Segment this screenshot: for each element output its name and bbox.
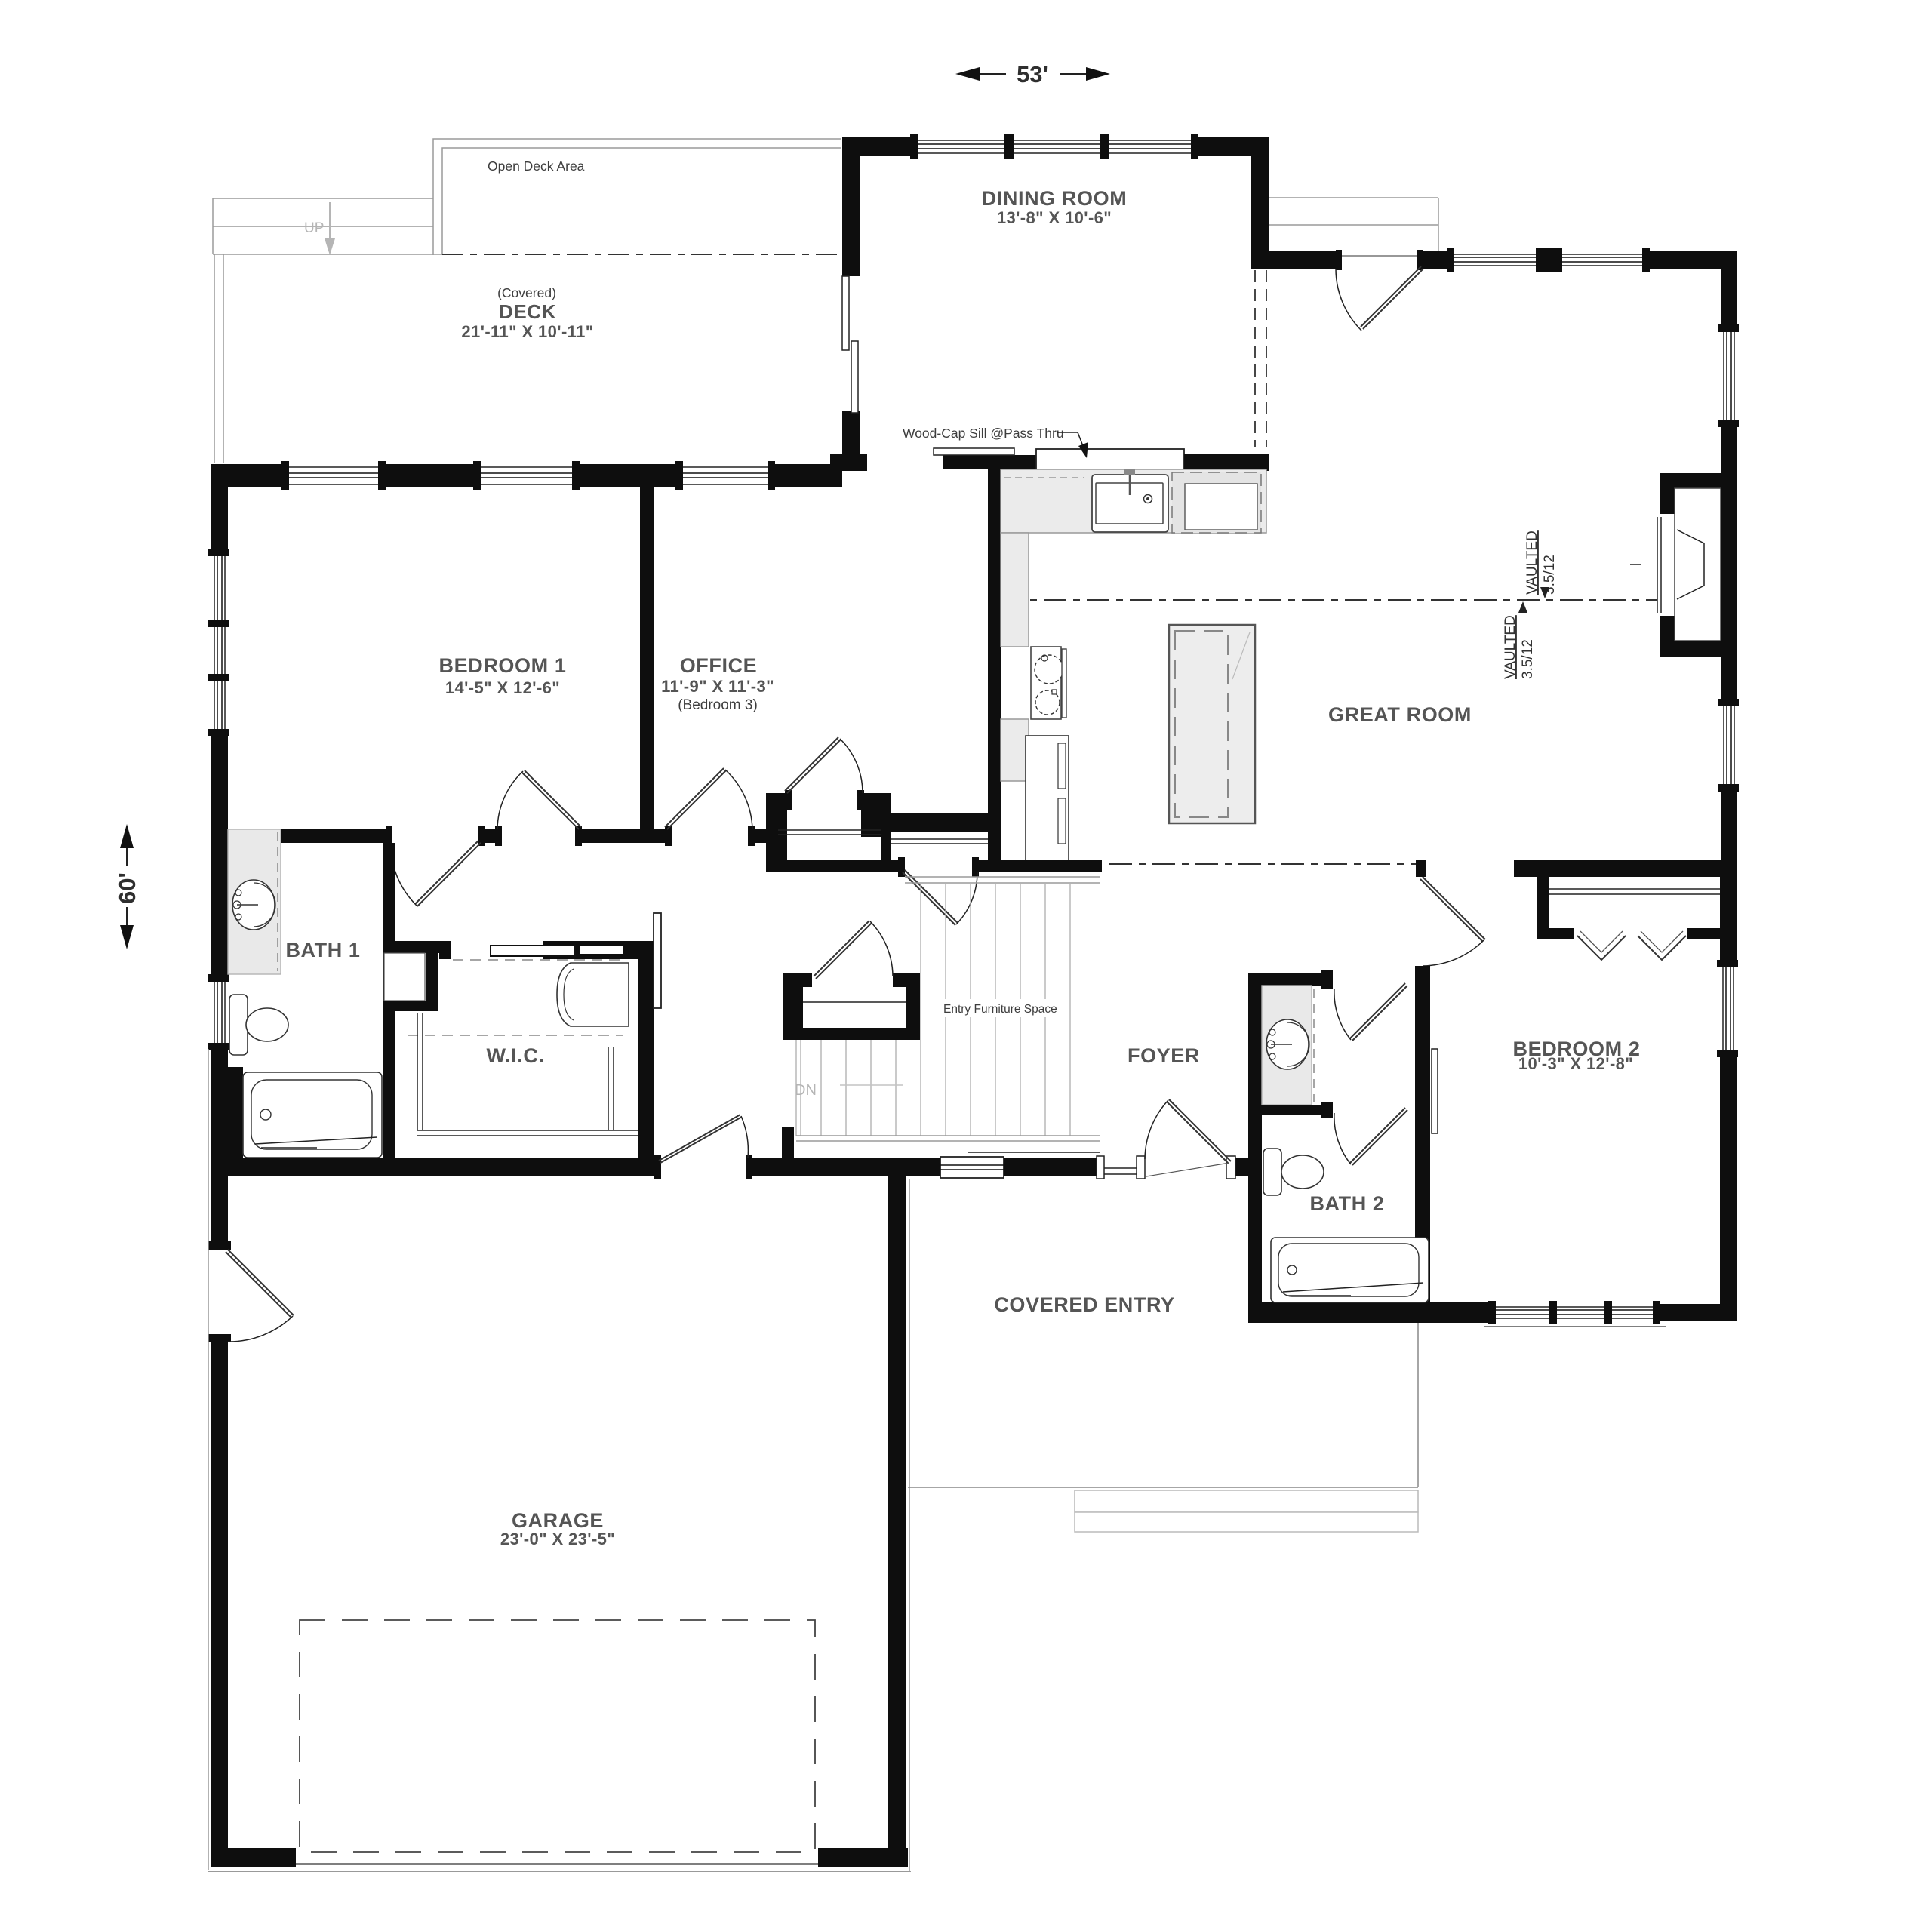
svg-text:DINING ROOM: DINING ROOM [982,187,1128,210]
svg-text:UP: UP [304,220,324,236]
svg-text:FOYER: FOYER [1128,1044,1200,1067]
svg-text:Open Deck Area: Open Deck Area [488,158,585,174]
svg-text:14'-5" X 12'-6": 14'-5" X 12'-6" [445,678,560,697]
svg-text:VAULTED: VAULTED [1524,530,1540,595]
svg-text:GARAGE: GARAGE [512,1509,604,1532]
svg-text:10'-3" X 12'-8": 10'-3" X 12'-8" [1518,1054,1633,1073]
svg-text:(Bedroom 3): (Bedroom 3) [678,697,758,713]
svg-text:BATH 2: BATH 2 [1309,1192,1384,1215]
svg-text:DN: DN [795,1082,817,1099]
svg-text:23'-0" X 23'-5": 23'-0" X 23'-5" [500,1530,615,1548]
svg-text:BEDROOM 1: BEDROOM 1 [439,654,567,677]
svg-text:11'-9" X 11'-3": 11'-9" X 11'-3" [661,677,774,696]
svg-text:Wood-Cap Sill @Pass Thru: Wood-Cap Sill @Pass Thru [903,426,1064,441]
svg-text:(Covered): (Covered) [497,285,556,300]
svg-text:21'-11" X 10'-11": 21'-11" X 10'-11" [461,322,593,341]
svg-text:GREAT ROOM: GREAT ROOM [1328,703,1472,726]
svg-text:W.I.C.: W.I.C. [486,1044,544,1067]
svg-text:BATH 1: BATH 1 [285,939,360,961]
svg-text:VAULTED: VAULTED [1503,615,1518,679]
svg-text:60': 60' [114,872,140,904]
svg-text:Entry Furniture Space: Entry Furniture Space [943,1003,1057,1016]
svg-text:3.5/12: 3.5/12 [1520,639,1536,679]
svg-text:53': 53' [1017,61,1048,88]
svg-text:OFFICE: OFFICE [680,654,758,677]
svg-text:DECK: DECK [499,300,556,323]
svg-text:COVERED ENTRY: COVERED ENTRY [994,1293,1174,1316]
svg-text:13'-8" X 10'-6": 13'-8" X 10'-6" [997,208,1112,227]
